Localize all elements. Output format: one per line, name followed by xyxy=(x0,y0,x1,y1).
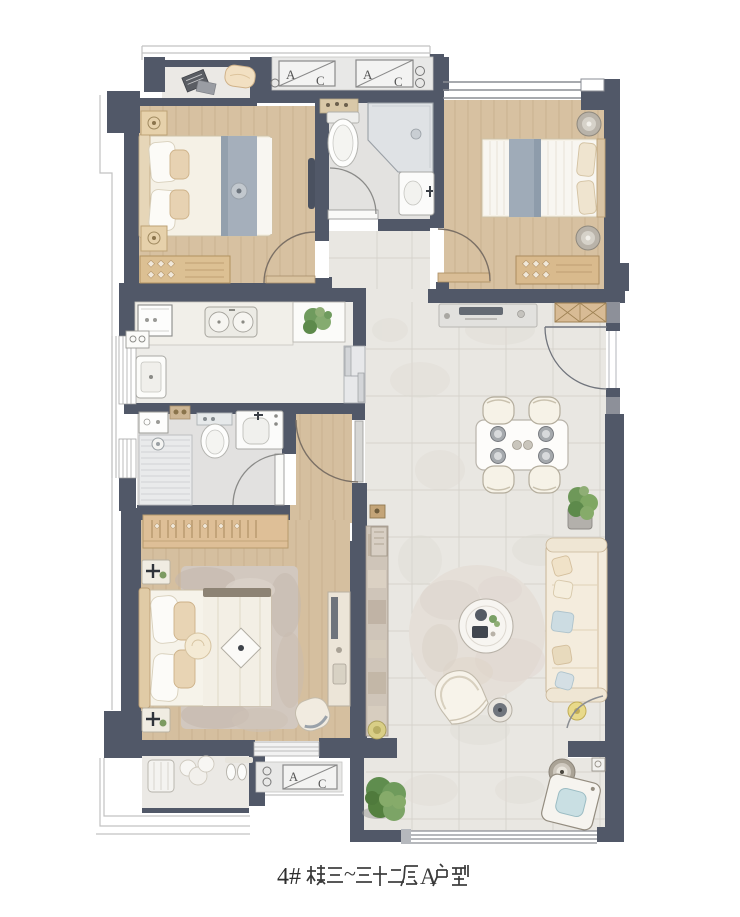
svg-text:A: A xyxy=(289,770,298,784)
svg-text:4#: 4# xyxy=(277,864,301,890)
svg-text:C: C xyxy=(316,73,325,88)
svg-text:~: ~ xyxy=(344,861,356,886)
svg-text:A: A xyxy=(363,67,373,82)
svg-text:C: C xyxy=(318,777,326,791)
svg-text:A: A xyxy=(286,67,296,82)
svg-text:A: A xyxy=(420,864,437,889)
svg-text:C: C xyxy=(394,74,403,89)
